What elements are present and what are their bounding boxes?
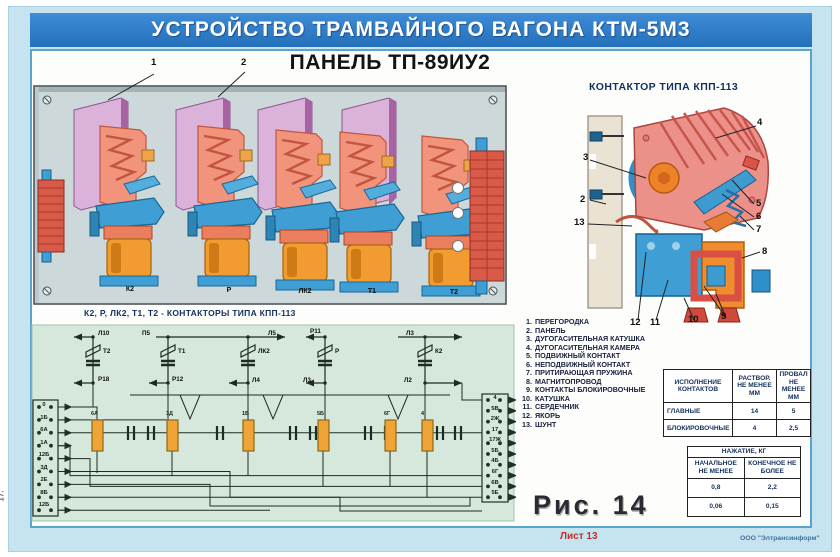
relay3-coil: ЛК2: [258, 349, 270, 355]
figure-label: Рис. 14: [533, 492, 649, 519]
relay4-coil: Р: [335, 349, 339, 355]
terminal-label: 1Б: [34, 416, 54, 422]
relay2-bottom: Р12: [172, 377, 183, 383]
terminal-label: 1А: [34, 441, 54, 447]
parts-list: 1.ПЕРЕГОРОДКА 2.ПАНЕЛЬ 3.ДУГОГАСИТЕЛЬНАЯ…: [517, 317, 669, 428]
poster: УСТРОЙСТВО ТРАМВАЙНОГО ВАГОНА КТМ-5М3 ПА…: [0, 0, 840, 557]
terminal-label: 12Б: [34, 453, 54, 459]
relay5-bottom: Л2: [404, 378, 412, 384]
contacts-table-cell: 5: [777, 403, 811, 420]
resistor-label: 5Б: [317, 412, 324, 418]
detail-title: КОНТАКТОР ТИПА КПП-113: [589, 81, 738, 93]
contacts-table-cell: 14: [732, 403, 776, 420]
relay1-coil: Т2: [103, 349, 110, 355]
terminal-label: 6А: [34, 428, 54, 434]
publisher-label: ООО "Элтрансинформ": [740, 536, 820, 543]
banner-title: УСТРОЙСТВО ТРАМВАЙНОГО ВАГОНА КТМ-5М3: [30, 13, 812, 47]
panel-label-t2: Т2: [437, 289, 471, 296]
relay4-top: Р11: [310, 329, 321, 335]
contacts-table-cell: 2,5: [777, 420, 811, 437]
pressure-table-cell: 0,15: [744, 498, 800, 517]
relay4-bottom: Л3: [303, 378, 311, 384]
panel-label-r: Р: [212, 287, 246, 294]
parts-list-item: 9.КОНТАКТЫ БЛОКИРОВОЧНЫЕ: [517, 385, 669, 394]
resistor-label: 6Г: [384, 412, 390, 418]
detail-callout-9: 9: [721, 312, 726, 322]
detail-callout-13: 13: [574, 218, 585, 228]
panel-label-k2: К2: [113, 286, 147, 293]
parts-list-item: 3.ДУГОГАСИТЕЛЬНАЯ КАТУШКА: [517, 334, 669, 343]
pressure-table-header: НАЧАЛЬНОЕ НЕ МЕНЕЕ: [688, 458, 745, 479]
panel-label-lk2: ЛК2: [288, 288, 322, 295]
panel-callout-1: 1: [151, 58, 156, 68]
parts-list-item: 7.ПРИТИРАЮЩАЯ ПРУЖИНА: [517, 368, 669, 377]
relay2-top: П5: [142, 331, 150, 337]
resistor-label: 3Д: [166, 412, 173, 418]
parts-list-item: 1.ПЕРЕГОРОДКА: [517, 317, 669, 326]
terminal-label: 5В: [483, 407, 507, 413]
terminal-label: 2Ж: [483, 417, 507, 423]
panel-callout-2: 2: [241, 58, 246, 68]
panel-caption: К2, Р, ЛК2, Т1, Т2 - КОНТАКТОРЫ ТИПА КПП…: [84, 308, 296, 318]
contacts-table-cell: ГЛАВНЫЕ: [664, 403, 733, 420]
parts-list-item: 13.ШУНТ: [517, 420, 669, 429]
parts-list-item: 12.ЯКОРЬ: [517, 411, 669, 420]
terminal-label: 4: [483, 396, 507, 402]
detail-callout-5: 5: [756, 199, 761, 209]
relay1-bottom: Р18: [98, 377, 109, 383]
contacts-table-header: РАСТВОР. НЕ МЕНЕЕ ММ: [732, 370, 776, 403]
parts-list-item: 6.НЕПОДВИЖНЫЙ КОНТАКТ: [517, 360, 669, 369]
left-terminal-strip: 0 1Б 6А 1А 12Б 3Д 2Е 8Б 12Б: [34, 403, 54, 509]
detail-callout-7: 7: [756, 225, 761, 235]
resistor-label: 4: [421, 412, 424, 418]
pressure-table-cell: 2,2: [744, 479, 800, 498]
parts-list-item: 10.КАТУШКА: [517, 394, 669, 403]
sheet-number: Лист 13: [560, 532, 598, 542]
terminal-label: 0: [34, 403, 54, 409]
relay2-coil: Т1: [178, 349, 185, 355]
relay5-top: Л3: [406, 331, 414, 337]
pressure-table-title: НАЖАТИЕ, КГ: [688, 447, 801, 458]
terminal-label: 3Д: [34, 466, 54, 472]
resistor-label: 1Б: [242, 412, 249, 418]
contacts-table-cell: БЛОКИРОВОЧНЫЕ: [664, 420, 733, 437]
terminal-label: 2Е: [34, 478, 54, 484]
relay1-top: Л10: [98, 331, 109, 337]
terminal-label: 5Е: [483, 491, 507, 497]
contacts-table-header: ИСПОЛНЕНИЕ КОНТАКТОВ: [664, 370, 733, 403]
parts-list-item: 4.ДУГОГАСИТЕЛЬНАЯ КАМЕРА: [517, 343, 669, 352]
terminal-label: 6Г: [483, 470, 507, 476]
detail-callout-8: 8: [762, 247, 767, 257]
panel-label-t1: Т1: [355, 288, 389, 295]
terminal-label: 5Б: [483, 449, 507, 455]
parts-list-item: 11.СЕРДЕЧНИК: [517, 402, 669, 411]
parts-list-item: 2.ПАНЕЛЬ: [517, 326, 669, 335]
pressure-table-cell: 0,8: [688, 479, 745, 498]
relay3-top: Л5: [268, 331, 276, 337]
parts-list-item: 5.ПОДВИЖНЫЙ КОНТАКТ: [517, 351, 669, 360]
contacts-table-cell: 4: [732, 420, 776, 437]
terminal-label: 4Б: [483, 459, 507, 465]
part-label: ШУНТ: [535, 420, 556, 429]
terminal-label: 6В: [483, 481, 507, 487]
contacts-table-header: ПРОВАЛ НЕ МЕНЕЕ ММ: [777, 370, 811, 403]
pressure-table-cell: 0,06: [688, 498, 745, 517]
detail-callout-3: 3: [583, 153, 588, 163]
page-side-number: 17.: [0, 490, 6, 501]
resistor-label: 6А: [91, 412, 98, 418]
pressure-table-header: КОНЕЧНОЕ НЕ БОЛЕЕ: [744, 458, 800, 479]
right-terminal-strip: 4 5В 2Ж 17 17Ж 5Б 4Б 6Г 6В 5Е: [483, 396, 507, 497]
detail-callout-4: 4: [757, 118, 762, 128]
contacts-table: ИСПОЛНЕНИЕ КОНТАКТОВ РАСТВОР. НЕ МЕНЕЕ М…: [663, 369, 811, 437]
relay5-coil: К2: [435, 349, 442, 355]
detail-callout-10: 10: [688, 315, 699, 325]
detail-callout-6: 6: [756, 212, 761, 222]
pressure-table: НАЖАТИЕ, КГ НАЧАЛЬНОЕ НЕ МЕНЕЕ КОНЕЧНОЕ …: [687, 446, 801, 517]
terminal-label: 8Б: [34, 491, 54, 497]
part-number: 13.: [517, 420, 532, 429]
page-title: ПАНЕЛЬ ТП-89ИУ2: [150, 51, 630, 75]
detail-callout-2: 2: [580, 195, 585, 205]
terminal-label: 12Б: [34, 503, 54, 509]
relay3-bottom: Л4: [252, 378, 260, 384]
parts-list-item: 8.МАГНИТОПРОВОД: [517, 377, 669, 386]
terminal-label: 17Ж: [483, 438, 507, 444]
terminal-label: 17: [483, 428, 507, 434]
